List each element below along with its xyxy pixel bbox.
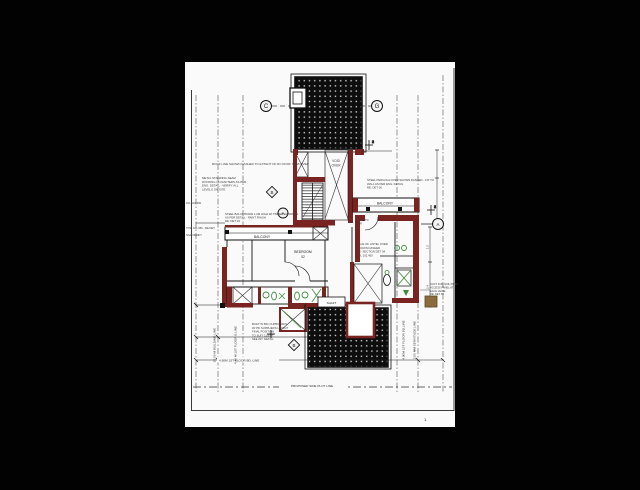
shaft-label: SHAFT [327, 301, 337, 305]
floor-plan-drawing: C G VOID OVER 2 2 [0, 0, 640, 490]
note-line: LEVELS ON SITE [202, 187, 225, 191]
grid-bubble-a-right-label: A [436, 222, 439, 227]
balcony-left-label: BALCONY [254, 235, 271, 239]
door-label-2: DR [358, 222, 362, 226]
building-line-label: 20.00 M BUILDING LINE [213, 328, 217, 362]
floor-line-left-label: 4.90 M 1ST FLOOR B.LINE [234, 326, 238, 364]
dim-value: 2.4 [426, 285, 430, 289]
bedroom-number: 02 [301, 255, 305, 259]
grid-bubble-b-bottom-label: B [292, 343, 295, 348]
note-line: ACCESS PANEL AT [430, 285, 454, 289]
roof-line-note: ROOF LINE SHOWN DASHED TO EXTENT OF RC R… [212, 162, 310, 166]
note-line: EACH LEVEL [430, 289, 447, 293]
floor-line-right-label: 4.90M 1ST FLOOR BD.LINE [402, 320, 406, 360]
dim-value: 1.5 [426, 245, 430, 249]
grid-bubble-c-label: C [264, 104, 269, 110]
margin-note: TOW 101.950 - RE DET [186, 226, 215, 230]
void-label-2: OVER [331, 164, 341, 168]
note-line: FFL 102.450 [357, 253, 373, 257]
note-line: RE: DET 06 [367, 186, 382, 190]
margin-note: NGL VERIFY [186, 233, 202, 237]
note-line: SEE INT. DETAIL [252, 337, 274, 341]
servitude-line-label: 2.00 MM SERVITUDE LINE [413, 321, 417, 359]
backdrop [0, 0, 640, 490]
bedroom-label: BEDROOM [294, 250, 312, 254]
wc-fixture [384, 275, 391, 286]
shaft [347, 303, 374, 337]
plot-line-label: PROPOSED SIDE PLOT LINE [291, 384, 333, 388]
door-leaf-tan [425, 296, 437, 307]
level-marker-top-label: 2 [372, 140, 374, 144]
note-line: RE: DET 03 [225, 219, 240, 223]
void-label-1: VOID [332, 159, 340, 163]
grid-bubble-b-label: B [270, 190, 273, 195]
grid-bubble-g-label: G [375, 104, 380, 110]
screenshot-stage: C G VOID OVER 2 2 [0, 0, 640, 490]
door-label-1: 900 STD [358, 218, 369, 222]
note-line: DUCT FOR SOIL PIPES [430, 282, 459, 286]
level-marker-right-label: 2 [434, 205, 436, 209]
page-mark: 1. [424, 417, 427, 422]
margin-note: FFL 101.500 [186, 201, 202, 205]
balcony-right-label: BALCONY [377, 202, 394, 206]
floor-line-dim-label: 4.90M 1ST FLOOR BD. LINE [219, 359, 259, 363]
